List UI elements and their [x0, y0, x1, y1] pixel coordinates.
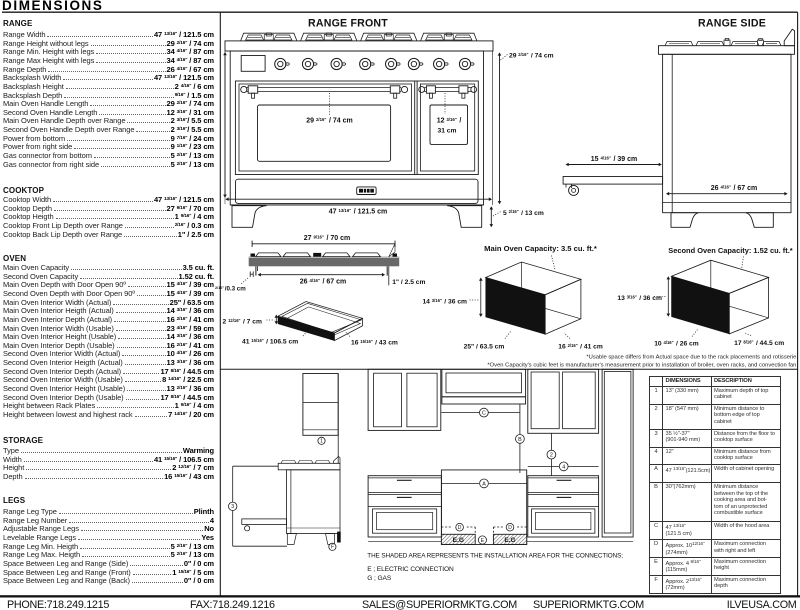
svg-text:Second Oven Capacity: 1.52 cu.: Second Oven Capacity: 1.52 cu. ft.*: [668, 246, 793, 255]
svg-text:B: B: [518, 437, 522, 443]
svg-text:1" / 2.5 cm: 1" / 2.5 cm: [392, 279, 425, 286]
svg-text:31 cm: 31 cm: [438, 127, 457, 134]
svg-text:A: A: [482, 481, 486, 487]
svg-text:5 2/16" / 13 cm: 5 2/16" / 13 cm: [503, 209, 544, 217]
svg-text:29 2/16" / 74 cm: 29 2/16" / 74 cm: [509, 52, 554, 60]
svg-text:E.G: E.G: [504, 537, 515, 544]
svg-text:F: F: [331, 545, 334, 551]
svg-text:RANGE FRONT: RANGE FRONT: [308, 18, 388, 30]
svg-text:13 3/16" / 36 cm: 13 3/16" / 36 cm: [617, 294, 662, 302]
svg-text:17 8/16" / 44.5 cm: 17 8/16" / 44.5 cm: [734, 339, 784, 347]
svg-text:C: C: [482, 411, 486, 417]
svg-text:*Usable space differs from Act: *Usable space differs from Actual space …: [586, 354, 798, 360]
svg-text:29 2/16" / 74 cm: 29 2/16" / 74 cm: [306, 117, 352, 125]
svg-text:*Oven Capacity's cubic feet is: *Oven Capacity's cubic feet is manufactu…: [487, 362, 798, 368]
svg-text:26 4/16" / 67 cm: 26 4/16" / 67 cm: [711, 184, 757, 192]
svg-text:16 15/16" / 43 cm: 16 15/16" / 43 cm: [351, 339, 398, 347]
svg-text:10 4/16" / 26 cm: 10 4/16" / 26 cm: [654, 340, 699, 348]
svg-text:16 2/16" / 41 cm: 16 2/16" / 41 cm: [558, 343, 603, 351]
svg-text:41 15/16" / 106.5 cm: 41 15/16" / 106.5 cm: [242, 338, 298, 346]
svg-text:47 13/16" / 121.5 cm: 47 13/16" / 121.5 cm: [329, 208, 388, 216]
svg-text:27 9/16" / 70 cm: 27 9/16" / 70 cm: [304, 235, 350, 243]
svg-text:E ; ELECTRIC CONNECTION: E ; ELECTRIC CONNECTION: [367, 566, 454, 573]
svg-text:E.G: E.G: [453, 537, 464, 544]
svg-text:THE SHADED AREA REPRESENTS THE: THE SHADED AREA REPRESENTS THE INSTALLAT…: [367, 552, 623, 559]
svg-text:1: 1: [320, 439, 323, 445]
svg-text:2: 2: [550, 453, 553, 459]
svg-text:14 3/16" / 36 cm: 14 3/16" / 36 cm: [422, 298, 467, 306]
svg-text:D: D: [508, 525, 512, 531]
svg-text:G ; GAS: G ; GAS: [367, 575, 392, 582]
svg-text:25" / 63.5 cm: 25" / 63.5 cm: [464, 343, 505, 350]
svg-text:12 3/16" /: 12 3/16" /: [437, 117, 462, 125]
svg-text:Main Oven Capacity: 3.5 cu. ft: Main Oven Capacity: 3.5 cu. ft.*: [484, 244, 597, 253]
svg-text:4: 4: [562, 464, 565, 470]
svg-text:26 4/16" / 67 cm: 26 4/16" / 67 cm: [300, 278, 346, 286]
svg-text:15 4/16" / 39 cm: 15 4/16" / 39 cm: [591, 156, 637, 164]
svg-text:RANGE SIDE: RANGE SIDE: [698, 18, 766, 30]
svg-text:2/16" /0.3 cm: 2/16" /0.3 cm: [215, 286, 246, 293]
svg-text:3: 3: [231, 504, 234, 510]
svg-text:2 12/16" / 7 cm: 2 12/16" / 7 cm: [223, 318, 262, 326]
svg-text:D: D: [458, 525, 462, 531]
